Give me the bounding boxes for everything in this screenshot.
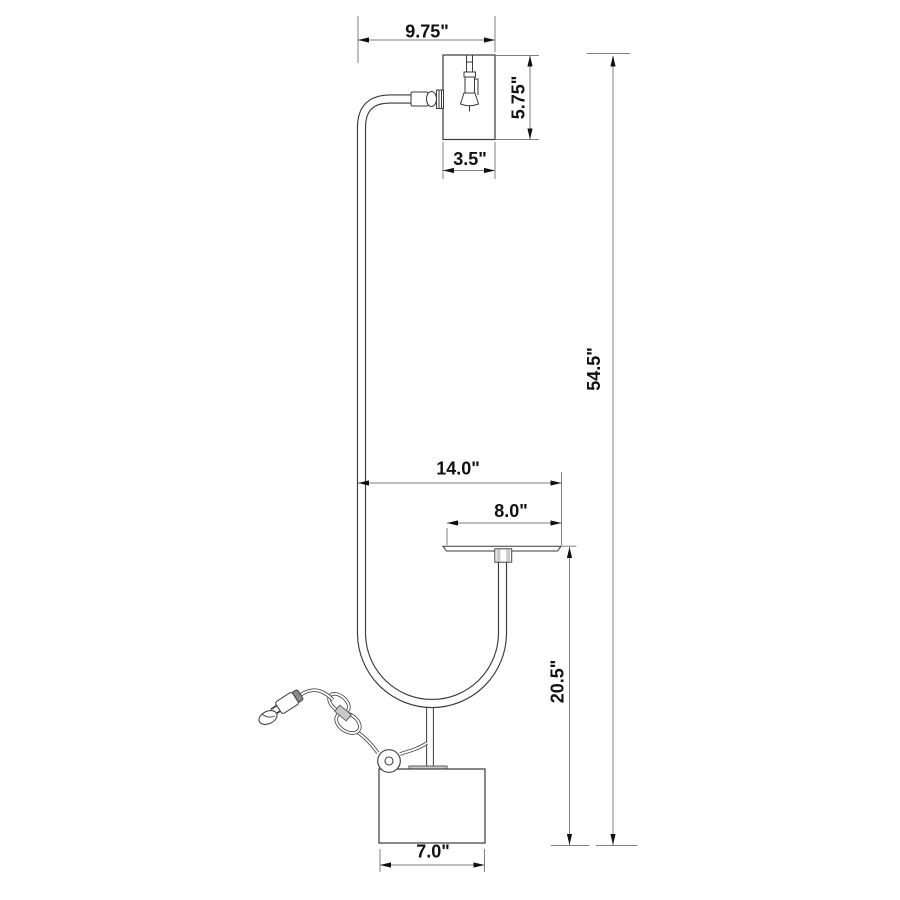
socket-body: [465, 77, 475, 93]
dimension-tray-width: 8.0": [447, 501, 562, 545]
arrow-left-icon: [358, 37, 369, 42]
dimension-arm-to-tray-width: 14.0": [358, 459, 562, 546]
arrow-right-icon: [551, 480, 562, 485]
dimension-label: 8.0": [494, 501, 528, 521]
arm-tube-body: [362, 99, 503, 704]
dimension-label: 3.5": [453, 149, 487, 169]
dimension-label: 54.5": [584, 347, 604, 391]
tray-collar: [495, 549, 512, 562]
socket-collar: [464, 72, 476, 77]
dimension-base-width: 7.0": [380, 842, 485, 873]
tray-table: [443, 546, 577, 562]
arm-shade-joint: [411, 90, 444, 109]
arrow-down-icon: [610, 834, 615, 845]
joint-pivot: [427, 92, 437, 107]
joint-cylinder: [411, 92, 428, 106]
dimension-label: 20.5": [548, 660, 568, 704]
dimension-shade-width: 3.5": [443, 142, 495, 179]
dimension-overall-height: 54.5": [584, 54, 637, 846]
dimension-label: 7.0": [416, 842, 450, 862]
dimension-shade-height: 5.75": [495, 56, 539, 140]
joint-knob: [437, 90, 444, 109]
dimension-label: 5.75": [509, 76, 529, 120]
dimension-label: 9.75": [405, 22, 449, 42]
arrow-down-icon: [567, 834, 572, 845]
dimension-label: 14.0": [436, 459, 480, 479]
collar-shade-right: [506, 550, 510, 562]
plug-ring: [257, 708, 279, 727]
lamp-head: [411, 55, 495, 140]
arrow-up-icon: [527, 56, 532, 67]
arrow-right-icon: [484, 37, 495, 42]
arrow-right-icon: [474, 862, 485, 867]
bulb: [461, 93, 479, 106]
arc-arm: [362, 99, 503, 704]
cord-wheel-hub: [385, 757, 393, 765]
base-stem: [427, 704, 434, 767]
lamp-dimension-diagram: 9.75" 5.75" 3.5" 54.5" 14.0": [0, 0, 900, 900]
arrow-up-icon: [610, 56, 615, 67]
arm-tube-outline: [362, 99, 503, 704]
stem-rod: [427, 704, 434, 767]
arrow-left-icon: [380, 862, 391, 867]
arrow-right-icon: [551, 520, 562, 525]
arrow-up-icon: [567, 547, 572, 558]
arrow-left-icon: [447, 520, 458, 525]
plug-prong-1: [271, 706, 277, 710]
collar-shade-left: [497, 550, 501, 562]
dimension-tray-to-floor-height: 20.5": [548, 547, 590, 846]
diagram-canvas: 9.75" 5.75" 3.5" 54.5" 14.0": [0, 0, 900, 900]
arrow-down-icon: [527, 129, 532, 140]
lamp-base: [379, 769, 485, 843]
